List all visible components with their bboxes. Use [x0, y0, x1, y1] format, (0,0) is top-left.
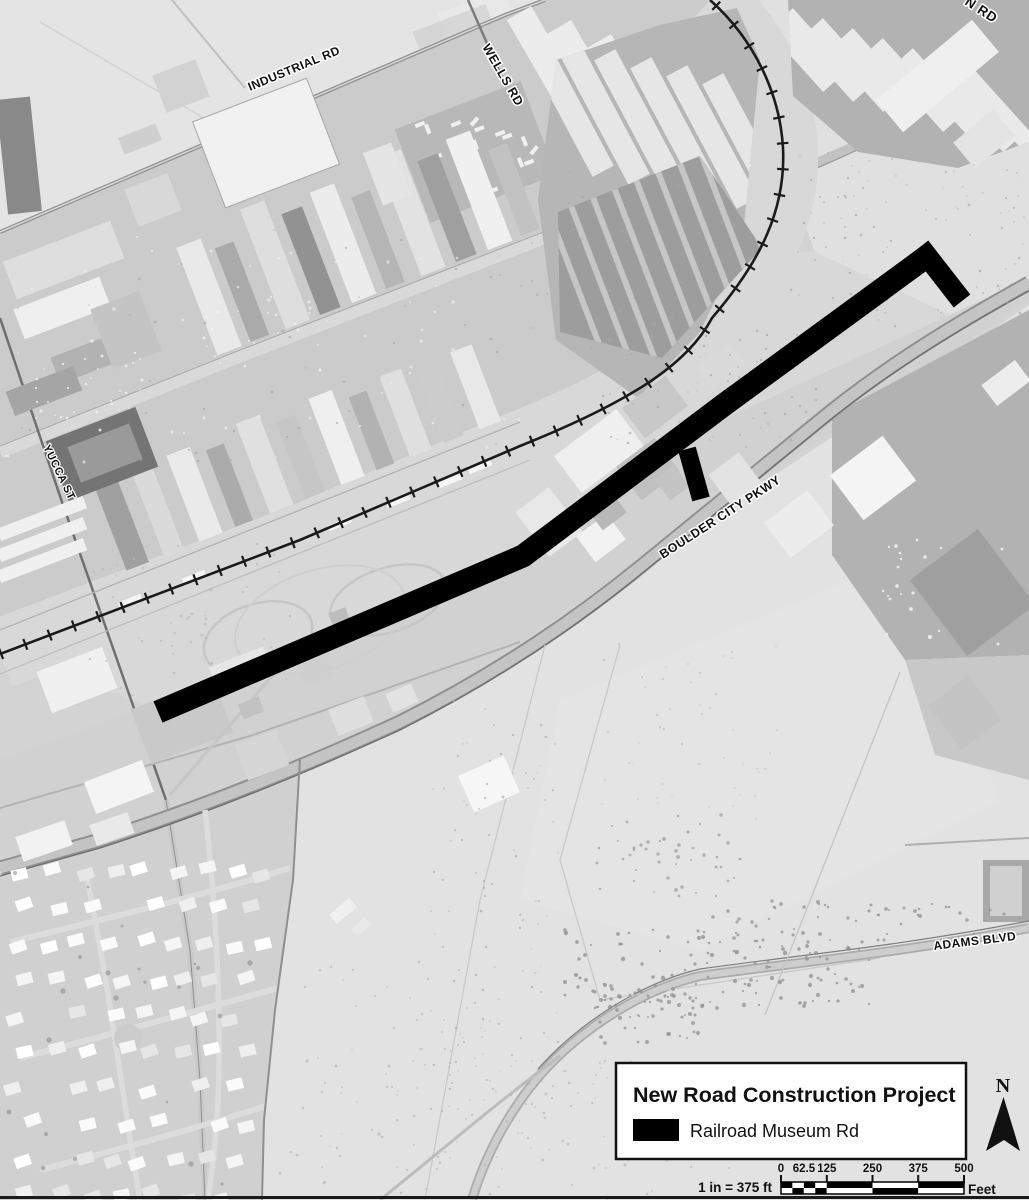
svg-text:250: 250 — [863, 1163, 882, 1175]
svg-text:375: 375 — [909, 1163, 929, 1175]
svg-text:New Road Construction Project: New Road Construction Project — [633, 1083, 956, 1107]
svg-text:N: N — [996, 1075, 1011, 1097]
svg-text:125: 125 — [817, 1163, 837, 1175]
svg-text:500: 500 — [954, 1163, 973, 1175]
svg-text:0: 0 — [778, 1163, 784, 1175]
svg-text:1 in = 375 ft: 1 in = 375 ft — [698, 1180, 772, 1195]
svg-text:Railroad Museum Rd: Railroad Museum Rd — [690, 1121, 859, 1141]
svg-text:62.5: 62.5 — [793, 1163, 816, 1175]
svg-text:Feet: Feet — [968, 1182, 996, 1197]
